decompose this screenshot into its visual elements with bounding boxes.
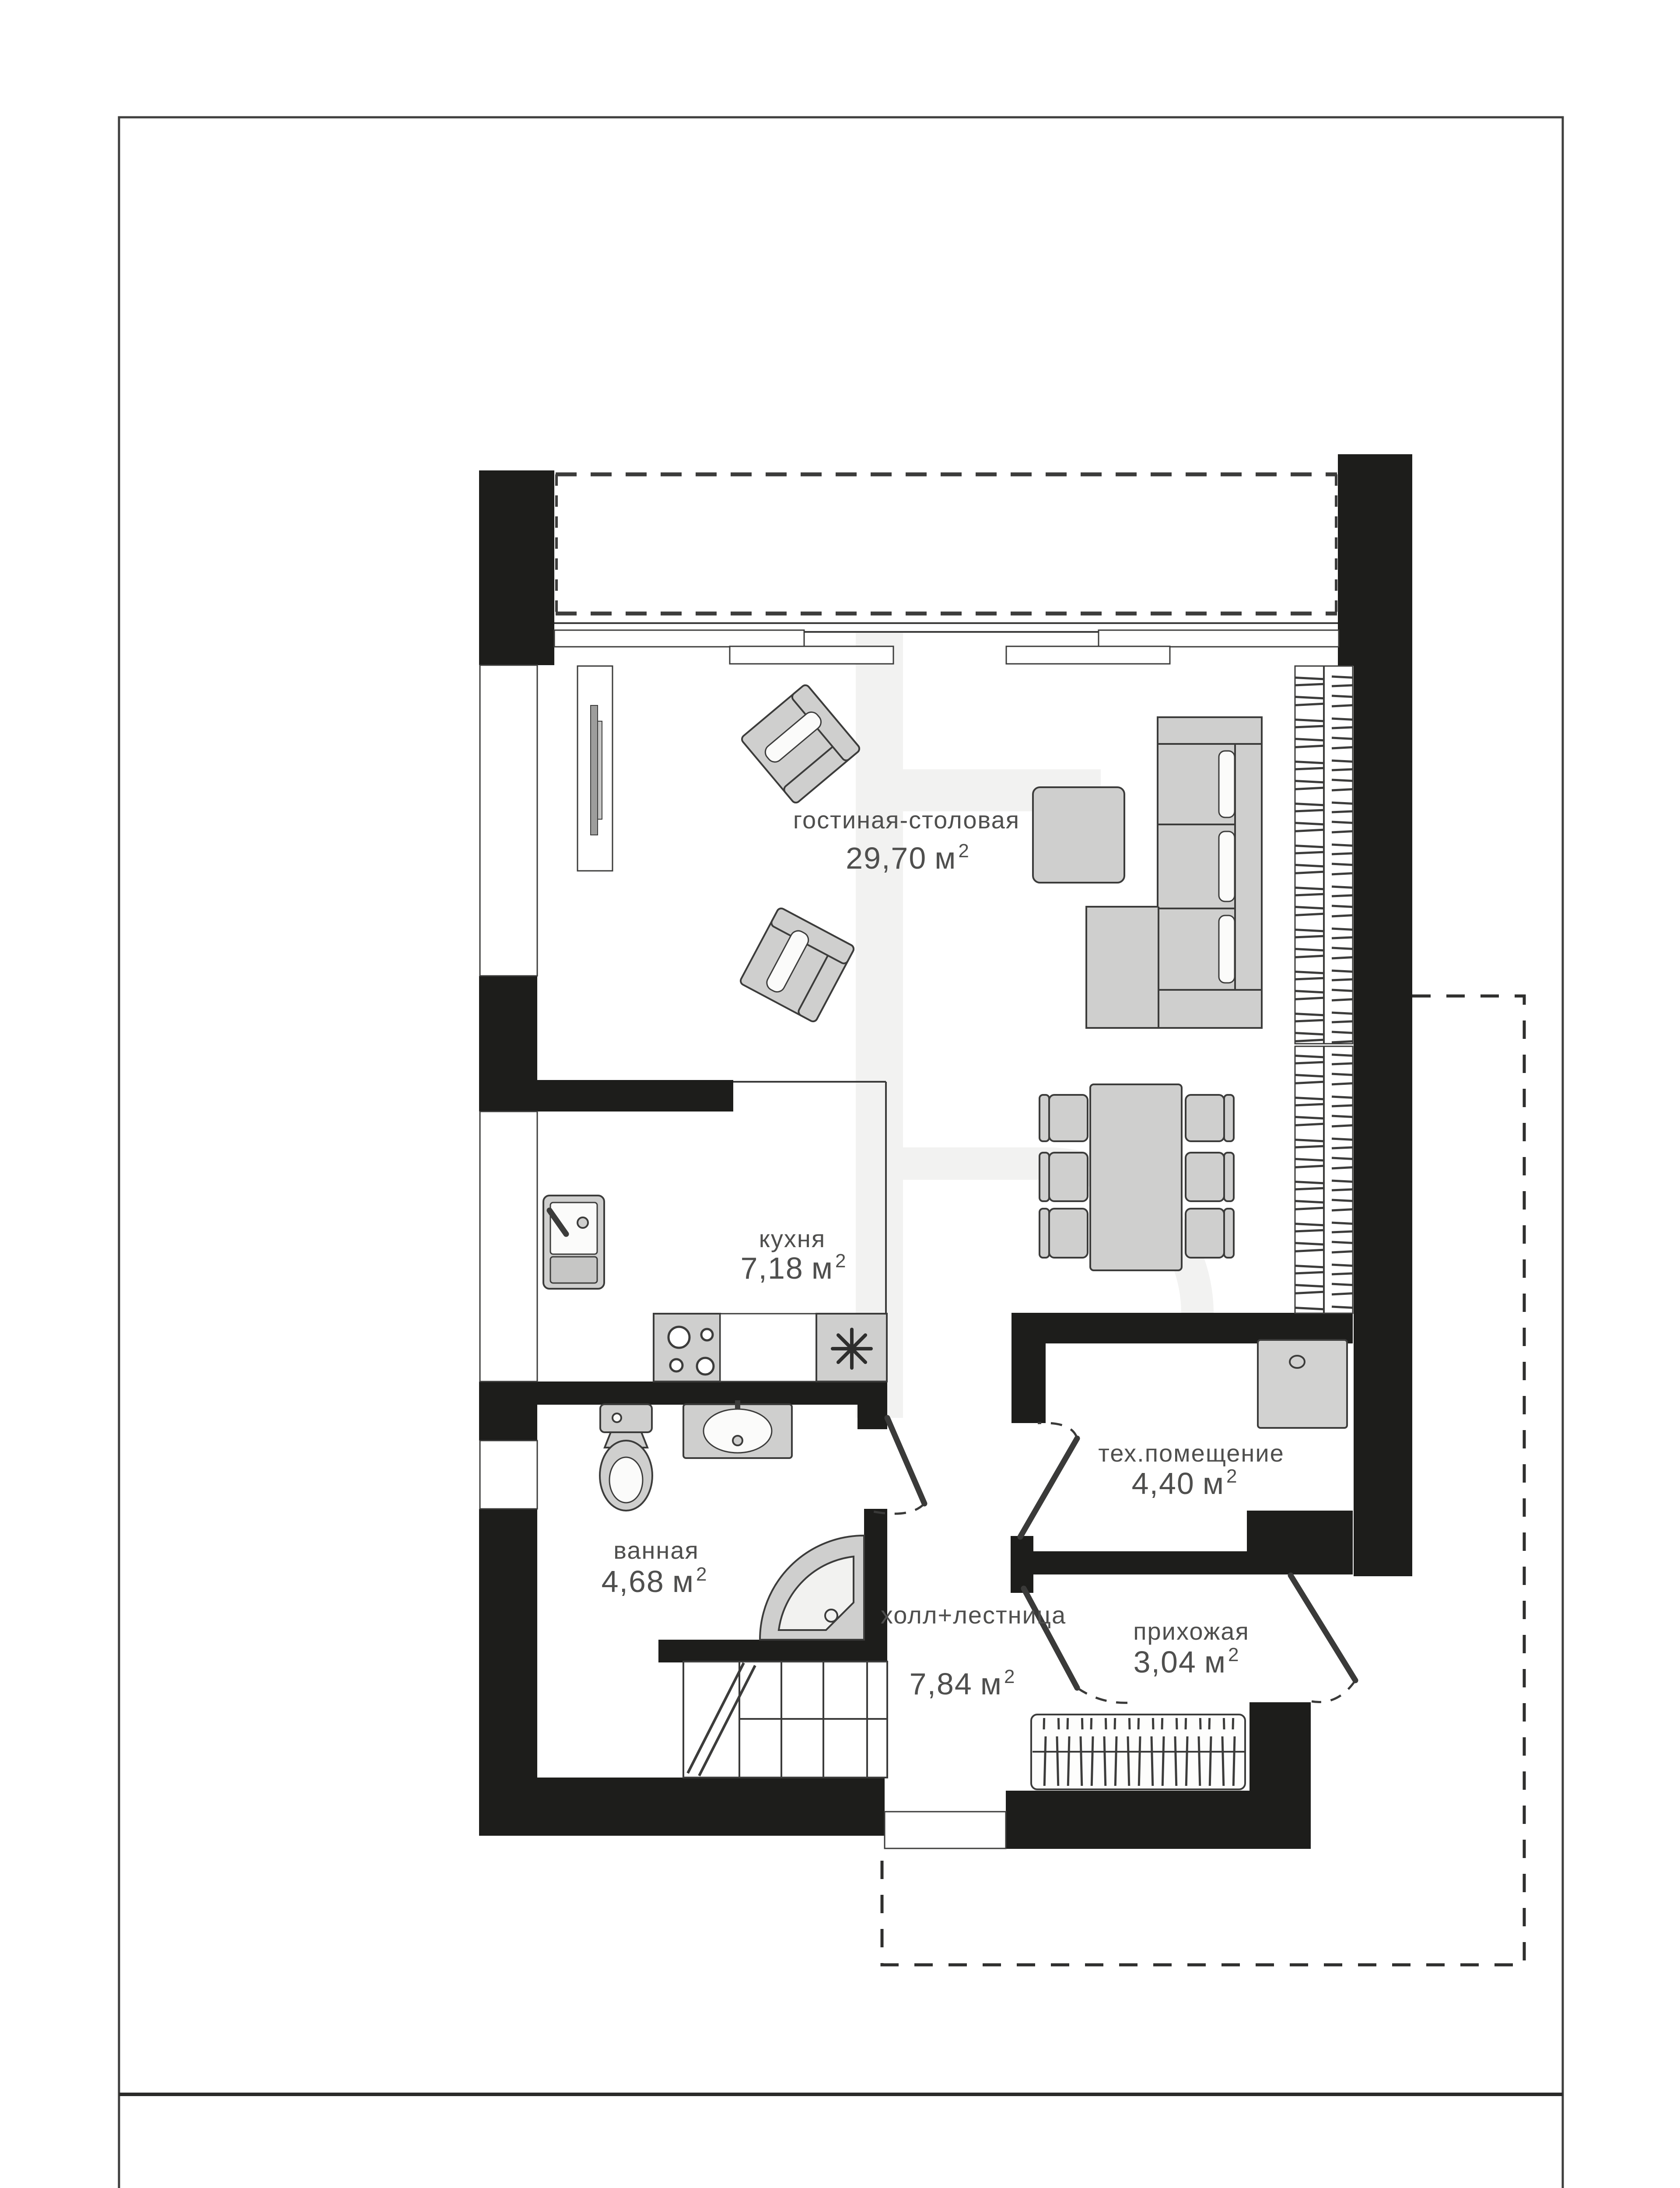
wardrobe-living [1295,666,1353,1313]
toilet [600,1404,652,1511]
wall-tech-pier [1011,1313,1046,1423]
room-area-tech: 4,40м2 [1132,1466,1238,1501]
wall-tech-bottom-block [1247,1511,1353,1574]
tv-screen [591,705,598,835]
entry-threshold [885,1812,1006,1848]
wall-pier-top-left [479,470,554,665]
wall-pier-top-right [1338,454,1412,666]
dining-table [1090,1084,1182,1270]
stairs [683,1662,887,1778]
kitchen-counter [654,1314,887,1382]
boiler [1258,1340,1347,1428]
wardrobe-entry [1031,1715,1245,1789]
armchair [740,684,861,804]
burner-icon [670,1359,682,1371]
drain-icon [577,1217,588,1228]
wall-bathroom-top [480,1382,857,1405]
counter [720,1314,816,1382]
burner-icon [701,1329,713,1340]
room-area-hall: 7,84м2 [910,1666,1016,1701]
door-panel [1006,646,1170,664]
wall-left-a [479,976,537,1112]
floorplan-page: гостиная-столовая 29,70м2 кухня 7,18м2 в… [0,0,1680,2188]
armchair [739,907,855,1023]
wall-bathroom-stub [857,1382,887,1429]
room-label-entry: прихожая [1133,1617,1249,1645]
room-label-hall: холл+лестница [881,1601,1066,1629]
sofa-pillow [1219,831,1235,901]
shower [760,1536,864,1640]
tech-room-door [1020,1438,1077,1537]
asterisk-icon [833,1329,871,1368]
sofa-pillow [1219,751,1235,817]
wall-entry-east [1249,1702,1311,1849]
wall-hall-stub [1011,1536,1033,1593]
room-label-living: гостиная-столовая [793,806,1020,834]
room-area-living: 29,70м2 [846,840,970,875]
door-panel [554,630,804,647]
window-left-2 [480,1112,537,1382]
coffee-table [1033,787,1124,883]
room-area-kitchen: 7,18м2 [741,1250,847,1285]
room-label-bathroom: ванная [613,1536,699,1564]
sofa-pillow [1219,915,1235,983]
bathroom-sink [683,1400,792,1458]
door-panel [730,646,893,664]
door-panel [1099,630,1339,647]
burner-icon [668,1327,689,1348]
window-left-3 [480,1441,537,1509]
wall-right [1354,666,1412,1576]
wall-bottom-left [479,1778,885,1836]
wall-kitchen-divider [537,1080,733,1112]
dining-set [1039,1084,1234,1270]
room-label-kitchen: кухня [759,1225,826,1252]
wall-tech-top [1046,1313,1353,1343]
bathroom-door [887,1418,924,1504]
sliding-glass-doors [554,623,1339,664]
tv-unit [577,666,612,871]
terrace-dashed-outline [556,474,1337,614]
wall-bathroom-bottom [658,1640,887,1662]
window-left-1 [480,665,537,976]
front-door [1291,1575,1355,1680]
kitchen-sink [543,1196,604,1289]
room-area-entry: 3,04м2 [1134,1644,1240,1679]
room-area-bathroom: 4,68м2 [602,1564,708,1599]
burner-icon [697,1358,714,1375]
room-label-tech: тех.помещение [1098,1439,1284,1467]
